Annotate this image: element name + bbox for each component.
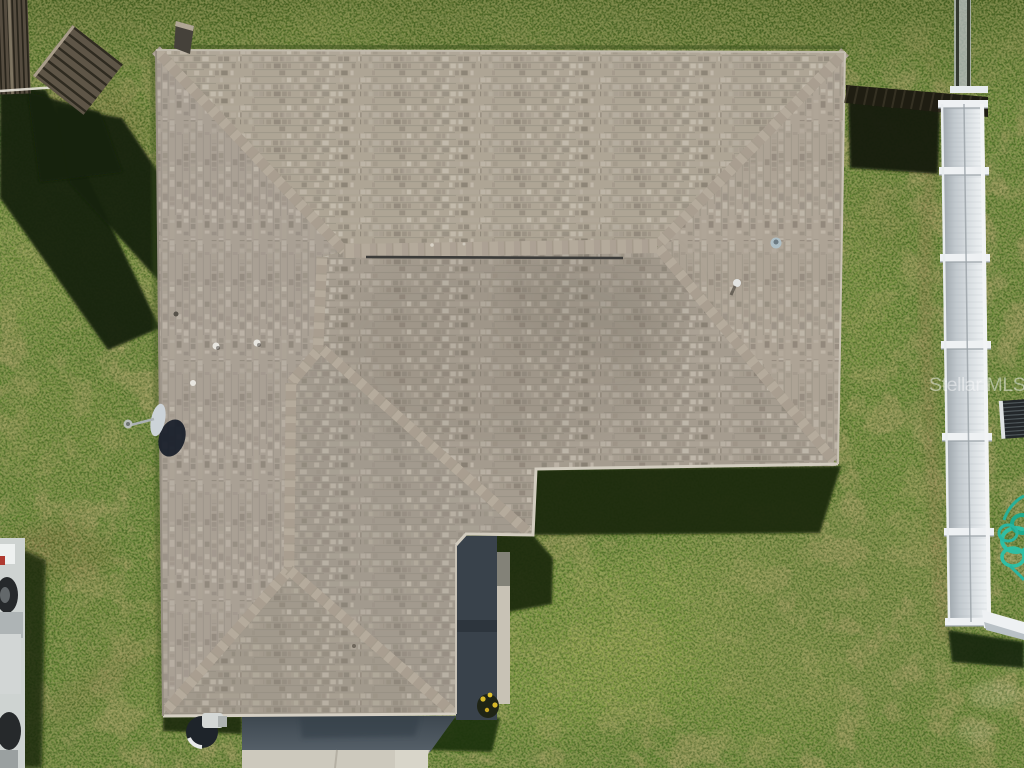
svg-text:Stellar MLS: Stellar MLS [929, 374, 1024, 396]
